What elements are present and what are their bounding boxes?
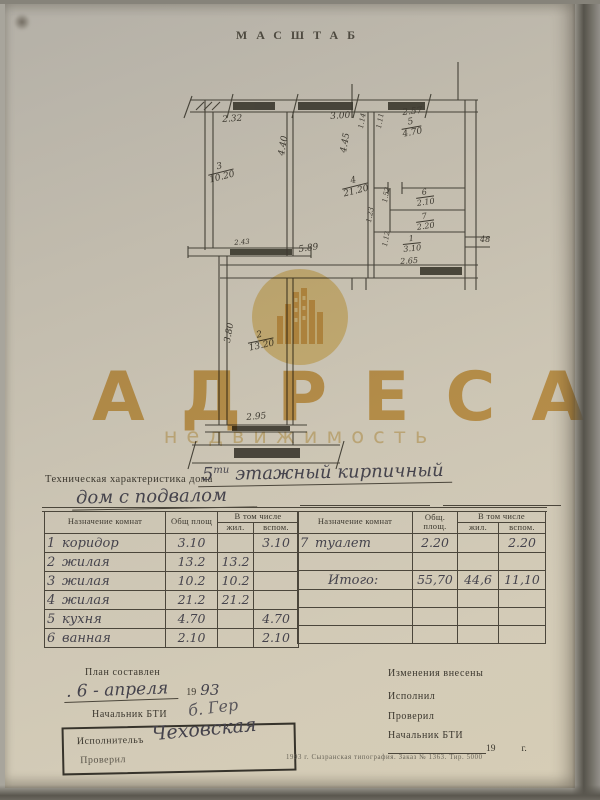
table-cell xyxy=(413,589,458,607)
table-cell xyxy=(499,552,546,570)
table-cell xyxy=(499,625,546,643)
plan-date-line: . 6 - апреля 19 93 xyxy=(64,680,219,701)
table-cell xyxy=(413,607,458,625)
masthead-title: МАСШТАБ xyxy=(0,28,600,43)
blank-underline xyxy=(388,743,486,754)
storeys-suffix: ти xyxy=(213,465,229,476)
table-row: 5кухня4.704.70 xyxy=(45,609,299,628)
year-prefix-printed: 19 xyxy=(186,687,196,698)
year-suffix: г. xyxy=(522,744,527,754)
table-cell: 7туалет xyxy=(298,533,413,552)
rooms-table-left: Назначение комнат Общ площ В том числе ж… xyxy=(44,511,299,648)
changes-made-label: Изменения внесены xyxy=(388,668,483,679)
table-cell xyxy=(218,628,254,647)
table-cell xyxy=(298,589,413,607)
year-handwritten: 93 xyxy=(200,681,219,699)
tech-hand-line1: 5ти этажный кирпичный xyxy=(198,460,452,487)
plan-dimension: 2.43 xyxy=(234,239,250,247)
table-cell: 13.2 xyxy=(166,552,218,571)
table-cell xyxy=(458,589,499,607)
table-row: 3жилая10.210.2 xyxy=(45,571,299,590)
plan-dimension: 48 xyxy=(480,236,490,244)
plan-room-label: 54.70 xyxy=(400,117,423,141)
table-cell xyxy=(458,552,499,570)
table-cell: 2жилая xyxy=(45,552,166,571)
blank-underline xyxy=(300,504,430,506)
plan-made-label: План составлен xyxy=(85,667,160,678)
plan-date-handwritten: . 6 - апреля xyxy=(64,678,179,703)
table-row: 1коридор3.103.10 xyxy=(45,533,299,552)
bti-chief-label: Начальник БТИ xyxy=(92,709,167,720)
table-body: 7туалет2.202.20Итого:55,7044,611,10 xyxy=(298,533,546,643)
table-row xyxy=(298,607,546,625)
table-cell xyxy=(499,607,546,625)
table-row: 2жилая13.213.2 xyxy=(45,552,299,571)
plan-dimension: 3.00 xyxy=(330,112,351,122)
col-header-auxiliary: вспом. xyxy=(499,522,546,533)
table-cell: 11,10 xyxy=(499,570,546,589)
checked-by-label: Проверил xyxy=(388,711,434,722)
table-cell xyxy=(298,552,413,570)
col-header-total-area: Общ.площ. xyxy=(413,512,458,534)
table-cell xyxy=(254,571,299,590)
blank-year-line: 19 г. xyxy=(388,743,527,754)
table-header: Назначение комнат Общ.площ. В том числе … xyxy=(298,512,546,534)
executor-label: Исполнительъ xyxy=(77,735,144,747)
table-row: 4жилая21.221.2 xyxy=(45,590,299,609)
table-cell: 10.2 xyxy=(218,571,254,590)
table-row xyxy=(298,625,546,643)
photo-edge-right xyxy=(572,0,600,800)
print-shop-imprint: 1993 г. Сызранская типография. Заказ № 1… xyxy=(286,754,578,761)
table-body: 1коридор3.103.102жилая13.213.23жилая10.2… xyxy=(45,533,299,647)
table-cell: 5кухня xyxy=(45,609,166,628)
photo-edge-top xyxy=(0,0,600,4)
table-cell: 3.10 xyxy=(254,533,299,552)
col-header-auxiliary: вспом. xyxy=(254,522,299,533)
table-row: 6ванная2.102.10 xyxy=(45,628,299,647)
col-header-room-name: Назначение комнат xyxy=(298,512,413,534)
table-cell: 1коридор xyxy=(45,533,166,552)
table-cell xyxy=(254,590,299,609)
table-cell xyxy=(218,609,254,628)
floor-plan: 2.323.002.574.404.451.141.111.521.231.12… xyxy=(172,60,502,472)
table-row: Итого:55,7044,611,10 xyxy=(298,570,546,589)
table-cell: 4жилая xyxy=(45,590,166,609)
table-row xyxy=(298,552,546,570)
table-cell: 21.2 xyxy=(166,590,218,609)
table-cell: 3жилая xyxy=(45,571,166,590)
table-cell xyxy=(499,589,546,607)
plan-dimension: 2.65 xyxy=(400,257,418,266)
checked-label: Проверил xyxy=(80,754,126,766)
table-row: 7туалет2.202.20 xyxy=(298,533,546,552)
photo-edge-bottom xyxy=(0,785,600,800)
table-header: Назначение комнат Общ площ В том числе ж… xyxy=(45,512,299,534)
table-cell: 4.70 xyxy=(166,609,218,628)
col-header-living: жил. xyxy=(458,522,499,533)
table-cell: 2.10 xyxy=(166,628,218,647)
table-cell xyxy=(254,552,299,571)
photo-of-document: { "masthead": "МАСШТАБ", "watermark": { … xyxy=(0,0,600,800)
plan-room-label: 13.10 xyxy=(402,234,422,254)
table-cell: Итого: xyxy=(298,570,413,589)
table-cell xyxy=(458,533,499,552)
storeys-number: 5 xyxy=(202,464,214,485)
table-cell: 2.20 xyxy=(413,533,458,552)
col-header-including: В том числе xyxy=(458,512,546,523)
col-header-including: В том числе xyxy=(218,512,299,523)
table-cell xyxy=(298,607,413,625)
table-cell xyxy=(413,625,458,643)
col-header-total-area: Общ площ xyxy=(166,512,218,534)
col-header-living: жил. xyxy=(218,522,254,533)
table-row xyxy=(298,589,546,607)
col-header-room-name: Назначение комнат xyxy=(45,512,166,534)
table-cell xyxy=(218,533,254,552)
plan-room-label: 62.10 xyxy=(415,188,435,209)
table-cell: 2.10 xyxy=(254,628,299,647)
table-cell: 6ванная xyxy=(45,628,166,647)
blank-underline xyxy=(443,504,561,506)
table-cell: 13.2 xyxy=(218,552,254,571)
table-cell: 3.10 xyxy=(166,533,218,552)
table-cell xyxy=(458,607,499,625)
table-cell: 4.70 xyxy=(254,609,299,628)
table-cell: 55,70 xyxy=(413,570,458,589)
table-cell xyxy=(458,625,499,643)
table-cell: 44,6 xyxy=(458,570,499,589)
stamp-box: Исполнительъ Чеховская Проверил xyxy=(62,723,297,776)
tech-characteristic-label: Техническая характеристика дома xyxy=(45,474,213,485)
year-prefix-printed: 19 xyxy=(486,744,496,754)
building-type-text: этажный кирпичный xyxy=(229,460,444,485)
done-by-label: Исполнил xyxy=(388,691,435,702)
table-cell: 2.20 xyxy=(499,533,546,552)
plan-room-label: 72.20 xyxy=(415,212,435,233)
table-cell: 21.2 xyxy=(218,590,254,609)
table-cell: 10.2 xyxy=(166,571,218,590)
rooms-table-right: Назначение комнат Общ.площ. В том числе … xyxy=(297,511,546,644)
plan-dimension: 2.32 xyxy=(222,115,243,125)
bti-chief-label-right: Начальник БТИ xyxy=(388,730,463,741)
table-cell xyxy=(413,552,458,570)
table-cell xyxy=(298,625,413,643)
plan-dimension: 2.95 xyxy=(246,412,267,423)
col-header-total-line2: площ. xyxy=(415,522,455,532)
